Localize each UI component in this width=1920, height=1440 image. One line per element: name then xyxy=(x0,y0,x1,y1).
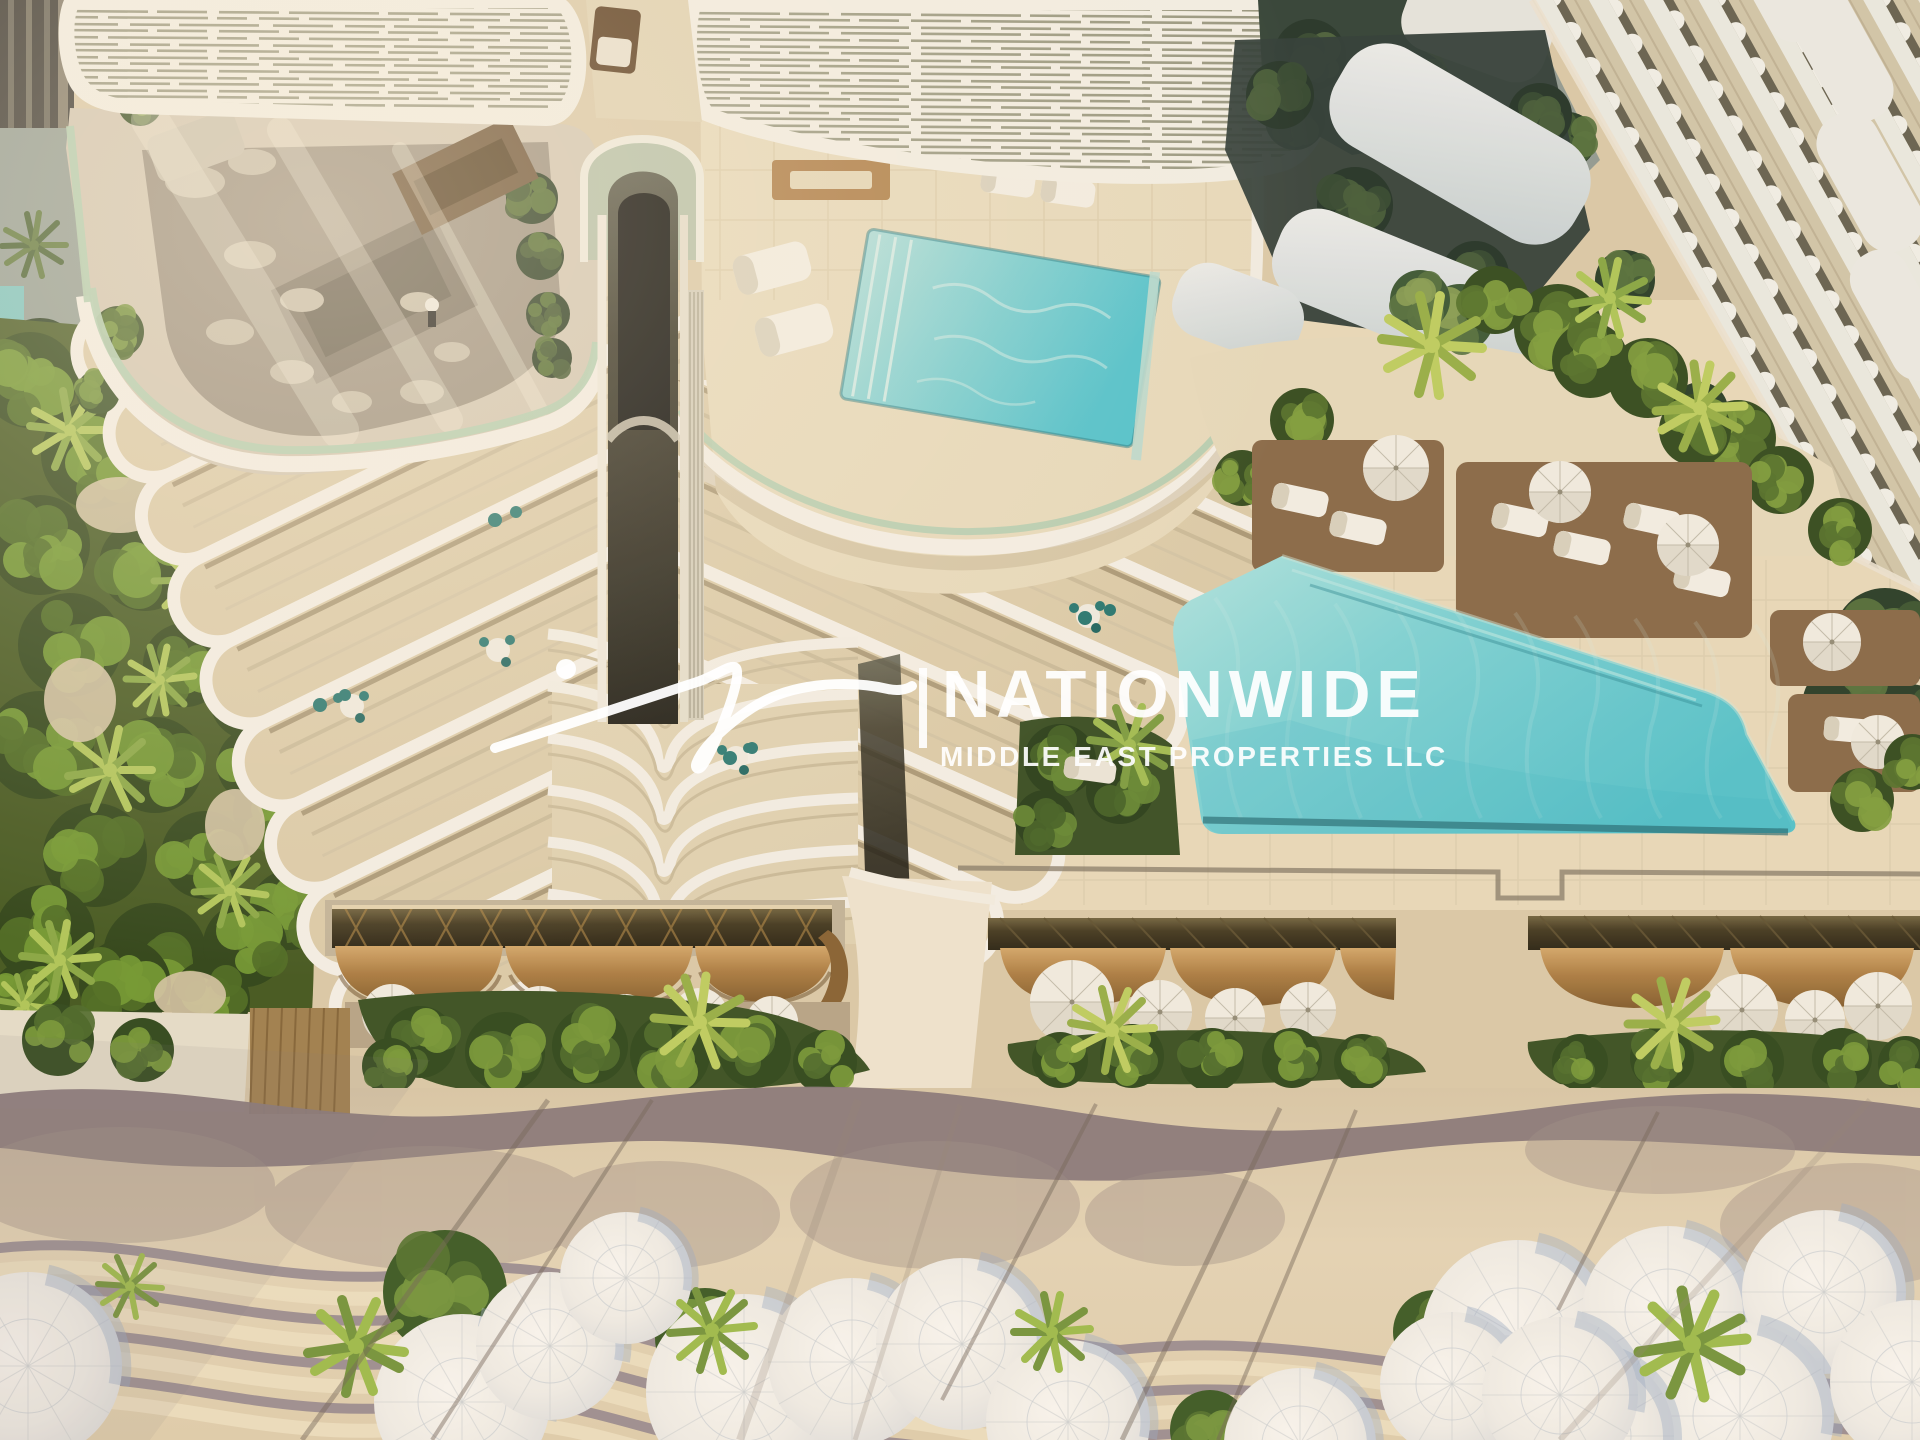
svg-text:MIDDLE EAST PROPERTIES LLC: MIDDLE EAST PROPERTIES LLC xyxy=(940,741,1448,772)
svg-text:NATIONWIDE: NATIONWIDE xyxy=(942,657,1427,732)
